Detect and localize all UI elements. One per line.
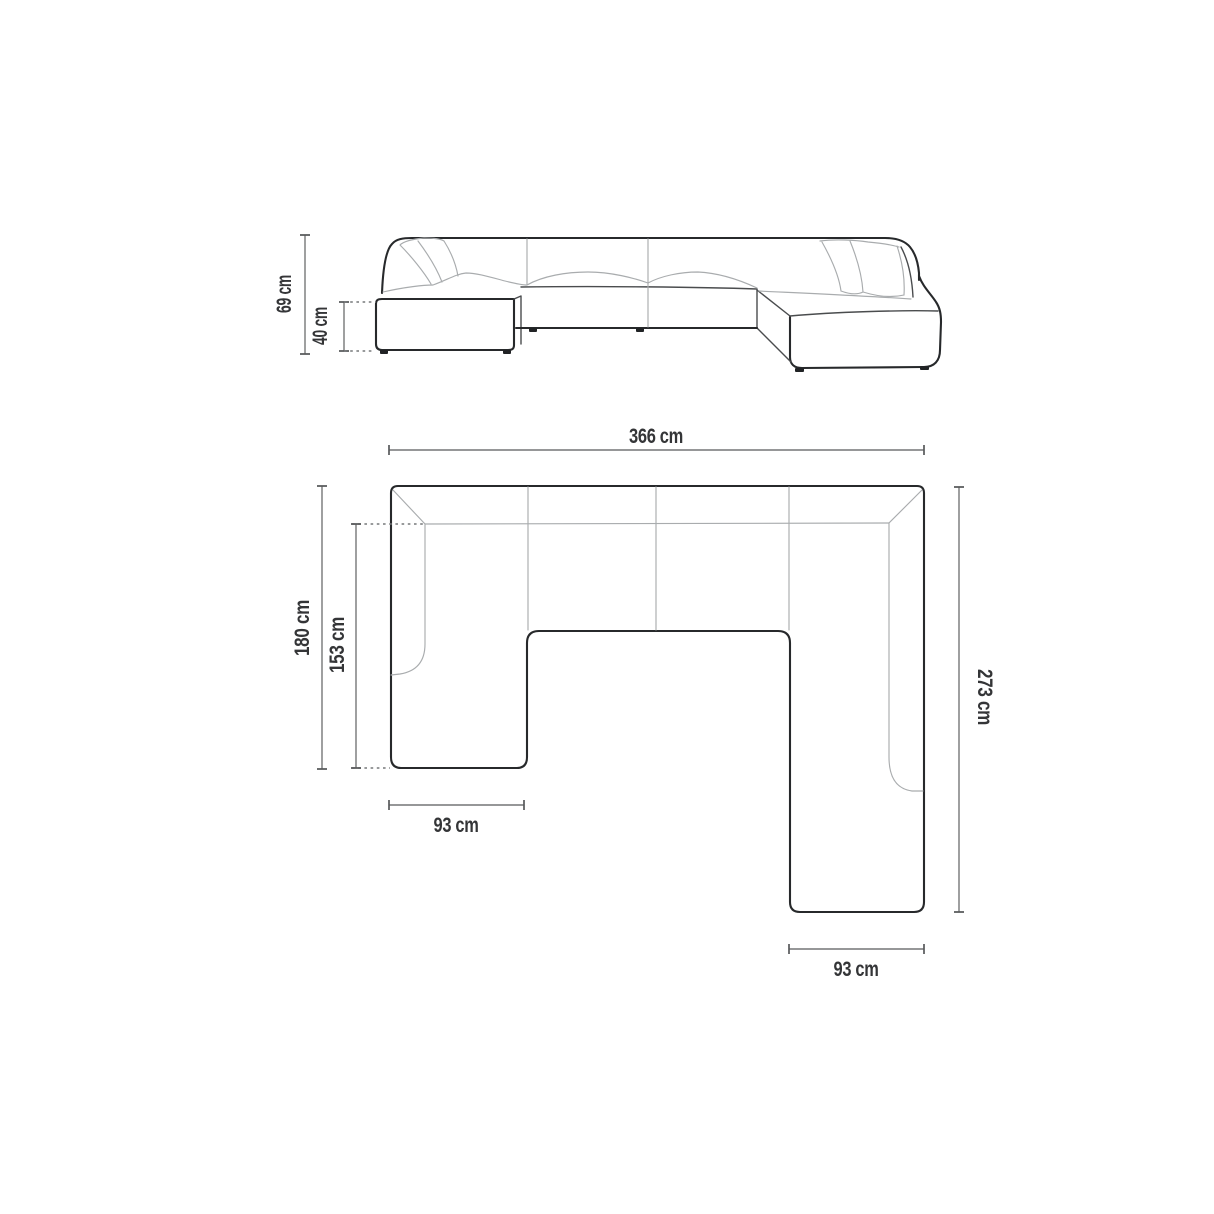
front-elevation-view: 69 cm 40 cm: [273, 235, 941, 372]
sofa-foot: [920, 366, 929, 370]
middle-front-top-edge: [521, 287, 757, 328]
dimension-right-side-depth-label: 273 cm: [973, 669, 996, 725]
extension-dotted-lines: [344, 302, 376, 351]
dimension-total-width: 366 cm: [389, 425, 924, 455]
dimension-left-side-depth-label: 180 cm: [291, 600, 314, 656]
sofa-foot: [529, 328, 537, 332]
plan-left-arm-inner-edge: [391, 524, 425, 675]
module-seams: [527, 239, 648, 327]
dimension-left-inner-depth-label: 153 cm: [326, 617, 349, 673]
left-backrest-cushion: [400, 238, 458, 284]
dimension-left-chaise-width-label: 93 cm: [434, 814, 479, 837]
right-chaise-top-back-edge: [759, 291, 911, 299]
sofa-foot: [795, 368, 804, 372]
sofa-plan-drawing: [352, 486, 924, 912]
dimension-right-chaise-width: 93 cm: [789, 944, 924, 981]
dimension-right-chaise-width-label: 93 cm: [834, 958, 879, 981]
sofa-front-elevation-drawing: [376, 238, 941, 372]
dimension-total-height: 69 cm: [273, 235, 310, 354]
sofa-foot: [636, 328, 644, 332]
dimension-total-height-label: 69 cm: [273, 275, 296, 313]
plan-outer-outline: [391, 486, 924, 912]
sofa-left-chaise-outline: [376, 299, 514, 350]
sofa-dimension-diagram: 69 cm 40 cm 366 cm: [0, 0, 1214, 1214]
right-chaise-left-edges: [757, 290, 791, 362]
sofa-foot: [503, 350, 511, 354]
right-chaise-top-front-edge: [790, 311, 938, 316]
dimension-left-chaise-width: 93 cm: [389, 800, 524, 837]
sofa-foot: [380, 350, 388, 354]
right-backrest-cushions: [820, 240, 904, 297]
sofa-right-chaise-outline: [790, 276, 941, 368]
plan-module-seams: [528, 487, 789, 630]
dimension-total-width-label: 366 cm: [629, 425, 683, 448]
dimension-left-side-depth: 180 cm: [291, 486, 327, 769]
dimension-seat-height-label: 40 cm: [309, 307, 332, 345]
dimension-left-inner-depth: 153 cm: [326, 524, 361, 768]
plan-backrest-edge: [425, 523, 889, 524]
plan-corner-diagonals: [393, 490, 922, 524]
plan-right-arm-inner-edge: [889, 523, 923, 791]
dimension-right-side-depth: 273 cm: [954, 487, 996, 912]
dimension-seat-height: 40 cm: [309, 302, 376, 351]
top-plan-view: 366 cm 180 cm 153 cm 273 cm 93 cm: [291, 425, 996, 981]
diagram-canvas: 69 cm 40 cm 366 cm: [0, 0, 1214, 1214]
sofa-back-outline: [382, 238, 919, 293]
